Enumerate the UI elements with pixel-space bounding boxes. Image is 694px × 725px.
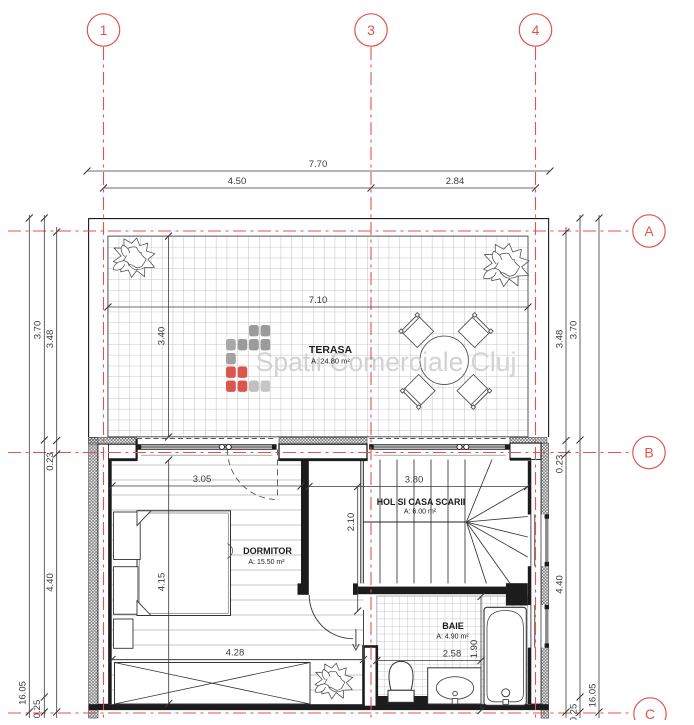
svg-text:HOL SI CASA SCARII: HOL SI CASA SCARII <box>377 497 465 507</box>
svg-text:A: 24.80 m²: A: 24.80 m² <box>311 357 350 366</box>
svg-text:7.70: 7.70 <box>309 159 328 170</box>
svg-text:BAIE: BAIE <box>442 621 464 631</box>
svg-text:4.28: 4.28 <box>226 648 245 659</box>
svg-text:4.40: 4.40 <box>45 573 56 592</box>
svg-text:B: B <box>644 445 653 461</box>
svg-text:4.40: 4.40 <box>555 575 566 594</box>
svg-text:2.10: 2.10 <box>346 513 357 532</box>
svg-text:A: 4.90 m²: A: 4.90 m² <box>436 634 469 641</box>
svg-text:0.25: 0.25 <box>569 704 580 720</box>
svg-text:DORMITOR: DORMITOR <box>243 546 292 556</box>
svg-text:A: 15.50 m²: A: 15.50 m² <box>248 559 285 566</box>
svg-text:1: 1 <box>100 22 108 38</box>
svg-text:4: 4 <box>532 22 540 38</box>
svg-text:3.05: 3.05 <box>193 474 212 485</box>
svg-text:0.23: 0.23 <box>45 452 56 471</box>
svg-text:4.50: 4.50 <box>228 176 247 187</box>
svg-text:TERASA: TERASA <box>309 344 353 356</box>
svg-text:A: 6.00 m²: A: 6.00 m² <box>404 509 437 516</box>
svg-text:2.84: 2.84 <box>446 176 465 187</box>
svg-text:3.48: 3.48 <box>555 330 566 349</box>
svg-text:A: A <box>644 223 654 239</box>
svg-text:1.90: 1.90 <box>469 640 480 659</box>
svg-text:2.58: 2.58 <box>443 649 462 660</box>
svg-text:C: C <box>645 706 655 720</box>
svg-text:3.70: 3.70 <box>33 321 44 340</box>
svg-text:4.15: 4.15 <box>157 573 168 592</box>
svg-text:0.23: 0.23 <box>555 455 566 474</box>
svg-text:0.25: 0.25 <box>32 700 43 719</box>
svg-text:16.05: 16.05 <box>588 684 599 708</box>
svg-text:3.40: 3.40 <box>157 327 168 346</box>
svg-text:3.80: 3.80 <box>405 475 424 486</box>
svg-text:7.10: 7.10 <box>309 295 328 306</box>
svg-text:3.48: 3.48 <box>45 330 56 349</box>
svg-text:3.70: 3.70 <box>569 321 580 340</box>
svg-text:Spatii Comerciale Cluj: Spatii Comerciale Cluj <box>256 347 517 377</box>
svg-text:16.05: 16.05 <box>18 681 29 705</box>
svg-text:3: 3 <box>367 22 375 38</box>
